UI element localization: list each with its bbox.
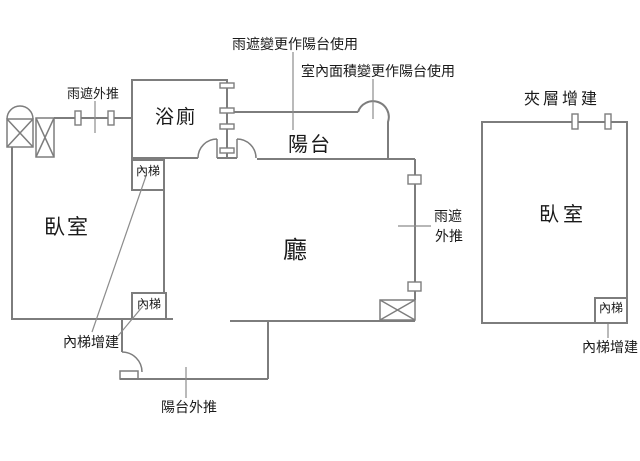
stair-boxes [132,160,627,323]
mezzanine-window-1 [572,114,578,129]
label-mezzanine-addition: 夾層增建 [524,90,600,108]
floor-plan-svg: 雨遮變更作陽台使用 室內面積變更作陽台使用 雨遮外推 夾層增建 浴廁 陽台 臥室… [0,0,640,461]
shaft-box-1-cross [7,119,33,147]
label-balcony: 陽台 [288,133,332,156]
hatched-boxes [7,106,415,320]
protrusion-step [120,371,138,379]
mezzanine-window-2 [605,114,611,129]
label-inner-stairs-addition-right: 內梯增建 [582,339,638,355]
bath-wall-tick-2 [220,108,234,113]
label-bedroom-right: 臥室 [539,203,587,226]
label-inner-stairs-right: 內梯 [599,301,623,315]
shaft-box-2-cross [36,118,54,157]
floor-plan-image: 雨遮變更作陽台使用 室內面積變更作陽台使用 雨遮外推 夾層增建 浴廁 陽台 臥室… [0,0,640,461]
living-right-window-2 [408,282,421,291]
label-inner-stairs-top: 內梯 [136,164,160,178]
bath-wall-tick-3 [220,124,234,129]
label-bedroom-left: 臥室 [44,216,90,239]
label-interior-area-change-to-balcony: 室內面積變更作陽台使用 [301,63,455,79]
label-inner-stairs-bottom: 內梯 [137,297,161,311]
living-right-window-1 [408,175,421,184]
window-top-left-1 [75,111,81,125]
label-bathroom: 浴廁 [155,105,197,128]
labels: 雨遮變更作陽台使用 室內面積變更作陽台使用 雨遮外推 夾層增建 浴廁 陽台 臥室… [44,36,638,415]
bath-wall-tick-4 [220,148,234,153]
balcony-door [237,139,256,158]
label-canopy-push-out-right-line1: 雨遮 [434,208,462,224]
protrusion-door [122,352,142,372]
label-canopy-push-out-right-line2: 外推 [435,228,463,244]
label-inner-stairs-addition-left: 內梯增建 [63,334,119,350]
bath-wall-tick-1 [220,83,234,88]
bathroom-door [198,139,217,158]
label-canopy-change-to-balcony: 雨遮變更作陽台使用 [232,36,358,52]
corner-arc [7,106,33,119]
window-top-left-2 [108,111,114,125]
living-hatched-box-cross [380,300,415,320]
label-canopy-push-out-top-left: 雨遮外推 [67,86,119,101]
label-balcony-push-out: 陽台外推 [161,399,217,415]
label-living-room: 廳 [283,237,307,264]
